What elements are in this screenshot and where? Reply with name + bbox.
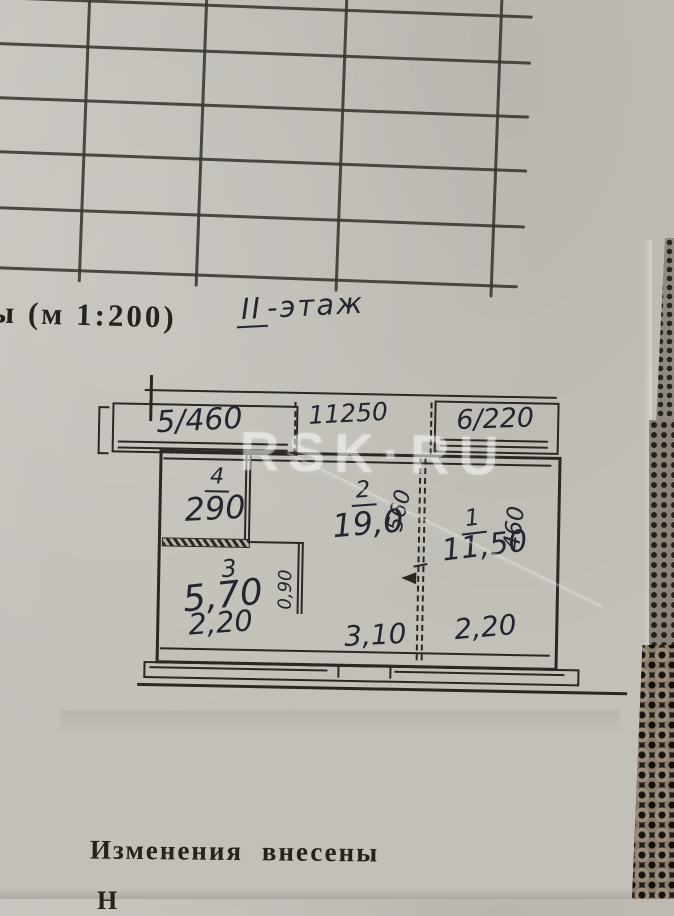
floor-plan: 5/460 11250 6/220 4 290 0,90 3 5,70 2 19… bbox=[89, 378, 593, 710]
table-line bbox=[0, 149, 527, 173]
lace-doily-background bbox=[656, 238, 674, 422]
table-line bbox=[195, 0, 209, 287]
room4-bottom-wall bbox=[162, 537, 250, 548]
lace-doily-background bbox=[649, 420, 674, 650]
changes-stamp-text: Изменения внесены bbox=[90, 834, 380, 868]
bottom-dimension-right: 2,20 bbox=[453, 611, 518, 644]
site-watermark: RSK·RU bbox=[239, 419, 508, 488]
table-line bbox=[78, 0, 92, 282]
door-arrow bbox=[401, 572, 416, 584]
floor-roman-numeral: II bbox=[235, 294, 268, 329]
caption-fragment: ы bbox=[0, 294, 18, 330]
plan-top-line bbox=[145, 389, 557, 399]
wall-bracket bbox=[98, 406, 110, 454]
room4-area: 290 bbox=[184, 491, 247, 526]
photographed-document: { "colors": { "paper": "#c3bfb9", "ink":… bbox=[0, 0, 674, 899]
table-line bbox=[335, 0, 349, 292]
paper-fold-shadow bbox=[60, 710, 620, 750]
edge-shadow bbox=[0, 889, 674, 899]
table-line bbox=[0, 95, 529, 119]
floor-word: -этаж bbox=[266, 286, 365, 325]
corridor-width-label: 0,90 bbox=[277, 550, 296, 610]
scale-label: (м 1:200) bbox=[28, 295, 178, 334]
strip-tick bbox=[337, 665, 339, 678]
table-line bbox=[0, 0, 533, 19]
strip-tick bbox=[389, 666, 391, 679]
bottom-dimension-middle: 3,10 bbox=[343, 620, 407, 651]
lace-doily-background bbox=[632, 645, 674, 899]
bottom-dimension-left: 2,20 bbox=[187, 606, 253, 639]
balcony-left-label: 5/460 bbox=[155, 404, 243, 438]
table-line bbox=[0, 205, 525, 229]
blank-inventory-table bbox=[0, 0, 545, 311]
table-line bbox=[489, 0, 503, 297]
plan-caption: ы (м 1:200) bbox=[0, 294, 177, 335]
table-line bbox=[0, 41, 531, 65]
floor-annotation: II-этаж bbox=[235, 289, 365, 329]
